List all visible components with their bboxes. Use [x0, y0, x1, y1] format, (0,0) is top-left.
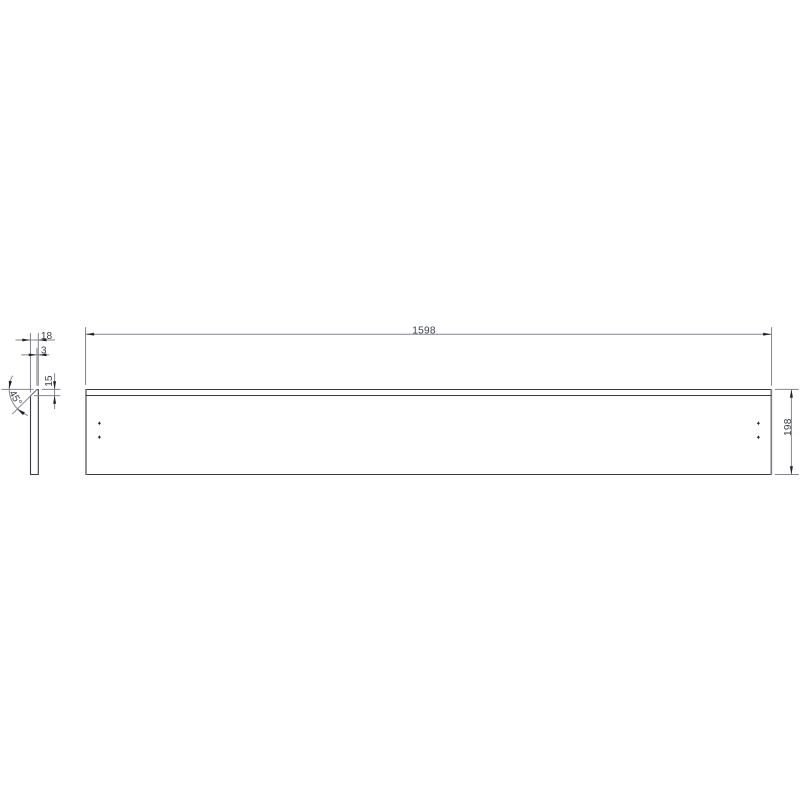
- svg-text:1598: 1598: [412, 325, 436, 336]
- svg-text:18: 18: [41, 331, 53, 342]
- svg-text:198: 198: [783, 418, 794, 436]
- svg-text:3: 3: [41, 345, 47, 356]
- svg-text:15: 15: [44, 375, 55, 387]
